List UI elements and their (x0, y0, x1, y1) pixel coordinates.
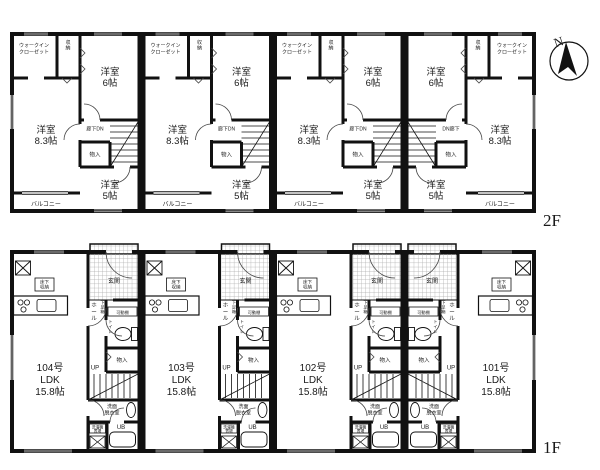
floor-storage-label: 収納 (172, 284, 181, 291)
unit-102-2f-labels: ウォークイン クローゼット 収納 洋室 6帖 洋室 8.3帖 廊下DN 物入 洋… (282, 39, 383, 208)
bath-label: UB (380, 425, 388, 431)
dn-corridor-label: DN廊下 (442, 126, 459, 133)
up-label: UP (354, 366, 362, 372)
washroom-label: 脱衣室 (367, 410, 382, 417)
room5-label: 洋室 (100, 179, 119, 191)
ldk-label: LDK (486, 375, 506, 386)
up-label: UP (222, 366, 230, 372)
up-label: UP (91, 366, 99, 372)
washroom-label: 脱衣室 (426, 410, 441, 417)
corridor-dn-label: 廊下DN (218, 126, 236, 133)
shelf-label: 可動棚 (116, 309, 129, 316)
unit-number: 101号 (483, 362, 510, 374)
unit-103-1f-geometry (144, 244, 272, 453)
hall-label: ホール (223, 302, 229, 322)
room6-label: 6帖 (234, 77, 249, 89)
laundry-label: 置場 (445, 429, 453, 434)
room6-label: 洋室 (232, 66, 251, 78)
ldk-size-label: 15.8帖 (35, 385, 64, 398)
storage-label: 物入 (116, 356, 128, 364)
storage-label: 物入 (221, 151, 233, 159)
room5-label: 5帖 (234, 190, 249, 202)
unit-102-1f-geometry (275, 244, 403, 453)
toilet-label: トイレ (240, 319, 244, 334)
wic-label: クローゼット (19, 49, 49, 56)
floor-1f-label: 1F (543, 438, 561, 457)
ldk-label: LDK (303, 375, 323, 386)
room5-label: 洋室 (363, 179, 382, 191)
ldk-label: LDK (40, 375, 60, 386)
washroom-label: 脱衣室 (236, 410, 251, 417)
compass-north-label: N (552, 33, 566, 50)
unit-101-1f-geometry (407, 244, 535, 453)
wic-label: ウォークイン (497, 42, 527, 49)
room5-label: 5帖 (429, 190, 444, 202)
ldk-size-label: 15.8帖 (298, 385, 327, 398)
room83-label: 8.3帖 (35, 135, 58, 147)
room83-label: 洋室 (490, 124, 509, 136)
balcony-label: バルコニー (294, 201, 324, 208)
genkan-label: 玄関 (371, 277, 383, 285)
room5-label: 5帖 (103, 190, 118, 202)
floor-storage-label: 収納 (303, 284, 312, 291)
storage-label: 物入 (418, 356, 430, 364)
shelf-label: 可動棚 (417, 309, 430, 316)
unit-number: 102号 (300, 362, 327, 374)
washroom-label: 洗面 (107, 403, 117, 410)
closet-label: 収納 (475, 39, 480, 52)
laundry-label: 置場 (225, 429, 233, 434)
toilet-label: トイレ (433, 319, 437, 334)
balcony-label: バルコニー (485, 201, 515, 208)
unit-103-2f-geometry (144, 33, 272, 213)
room6-label: 6帖 (366, 77, 381, 89)
balcony-label: バルコニー (163, 201, 193, 208)
room5-label: 洋室 (232, 179, 251, 191)
floor-storage-label: 収納 (497, 284, 506, 291)
unit-101-2f-labels: ウォークイン クローゼット 収納 洋室 6帖 洋室 8.3帖 DN廊下 物入 洋… (426, 39, 527, 208)
unit-number: 103号 (168, 362, 195, 374)
up-label: UP (447, 366, 455, 372)
bath-label: UB (117, 425, 125, 431)
balcony-label: バルコニー (31, 201, 61, 208)
room83-label: 8.3帖 (298, 135, 321, 147)
unit-104-1f-geometry (12, 244, 140, 453)
room83-label: 8.3帖 (166, 135, 189, 147)
ldk-size-label: 15.8帖 (481, 385, 510, 398)
floor-2f-label: 2F (543, 211, 561, 230)
compass: N (550, 33, 588, 80)
toilet-label: トイレ (371, 319, 375, 334)
washroom-label: 洗面 (429, 403, 439, 410)
unit-104-2f-geometry (12, 33, 140, 213)
ldk-size-label: 15.8帖 (167, 385, 196, 398)
wic-label: クローゼット (150, 49, 180, 56)
shelf-label: 可動棚 (379, 309, 392, 316)
genkan-label: 玄関 (239, 277, 251, 285)
room6-label: 6帖 (103, 77, 118, 89)
floor-plan: ウォークイン クローゼット 収納 洋室 6帖 洋室 8.3帖 廊下DN 物入 洋… (0, 0, 600, 470)
wic-label: クローゼット (282, 49, 312, 56)
room6-label: 洋室 (363, 66, 382, 78)
wic-label: クローゼット (497, 49, 527, 56)
unit-102-2f-geometry (275, 33, 403, 213)
hall-label: ホール (449, 302, 455, 322)
washroom-label: 脱衣室 (104, 410, 119, 417)
ldk-label: LDK (172, 375, 192, 386)
room6-label: 洋室 (100, 66, 119, 78)
genkan-label: 玄関 (426, 277, 438, 285)
closet-label: 収納 (328, 39, 333, 52)
corridor-dn-label: 廊下DN (349, 126, 367, 133)
unit-number: 104号 (37, 362, 64, 374)
storage-label: 物入 (248, 356, 260, 364)
hall-label: ホール (354, 302, 360, 322)
room5-label: 洋室 (426, 179, 445, 191)
floor-storage-label: 収納 (40, 284, 49, 291)
room83-label: 洋室 (36, 124, 55, 136)
corridor-dn-label: 廊下DN (86, 126, 104, 133)
storage-label: 物入 (379, 356, 391, 364)
room6-label: 洋室 (426, 66, 445, 78)
unit-103-2f-labels: ウォークイン クローゼット 収納 洋室 6帖 洋室 8.3帖 廊下DN 物入 洋… (150, 39, 251, 208)
washroom-label: 洗面 (238, 403, 248, 410)
room83-label: 洋室 (168, 124, 187, 136)
room83-label: 8.3帖 (489, 135, 512, 147)
hall-label: ホール (91, 302, 97, 322)
bath-label: UB (421, 425, 429, 431)
wic-label: ウォークイン (282, 42, 312, 49)
wic-label: ウォークイン (19, 42, 49, 49)
laundry-label: 置場 (357, 429, 365, 434)
shelf-label: 可動棚 (248, 309, 261, 316)
closet-label: 収納 (197, 39, 202, 52)
toilet-label: トイレ (108, 319, 112, 334)
genkan-label: 玄関 (108, 277, 120, 285)
wic-label: ウォークイン (150, 42, 180, 49)
storage-label: 物入 (352, 151, 364, 159)
unit-104-2f-labels: ウォークイン クローゼット 収納 洋室 6帖 洋室 8.3帖 廊下DN 物入 洋… (19, 39, 120, 208)
room83-label: 洋室 (299, 124, 318, 136)
washroom-label: 洗面 (370, 403, 380, 410)
storage-label: 物入 (89, 151, 101, 159)
bath-label: UB (248, 425, 256, 431)
room6-label: 6帖 (429, 77, 444, 89)
room5-label: 5帖 (366, 190, 381, 202)
shoe-box-label: 下足箱 (441, 300, 446, 315)
laundry-label: 置場 (94, 429, 102, 434)
closet-label: 収納 (65, 39, 70, 52)
storage-label: 物入 (445, 151, 457, 159)
